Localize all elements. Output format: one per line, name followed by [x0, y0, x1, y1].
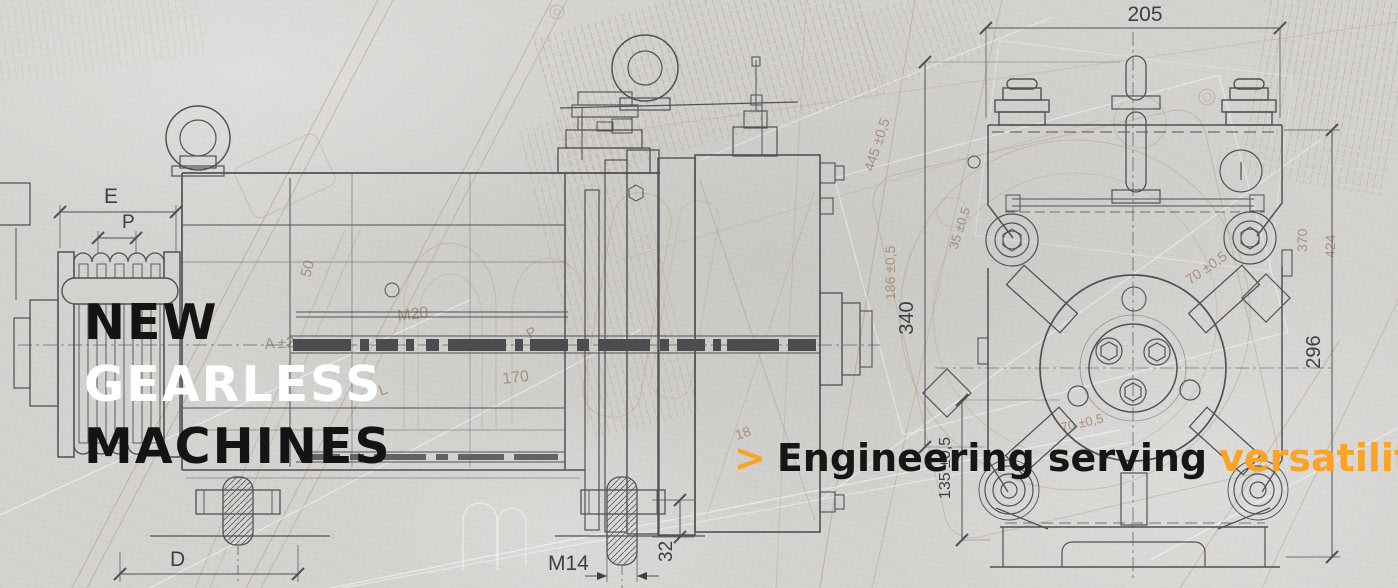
hero-banner: 50 M20 A ±2 P 170 L 18 445 ±0,5 186 ±0,5… — [0, 0, 1398, 588]
tagline-accent-text: versatility — [1219, 436, 1398, 480]
sketch-dim-186: 186 ±0,5 — [882, 245, 898, 300]
headline-line-1: NEW — [84, 292, 392, 354]
sketch-dim-p: P — [523, 323, 539, 342]
sketch-dim-424: 424 — [1322, 234, 1338, 258]
dim-label-e: E — [104, 185, 118, 208]
headline-line-3: MACHINES — [84, 416, 392, 478]
dim-label-m14: M14 — [548, 552, 589, 575]
sketch-dim-70a: 70 ±0,5 — [1183, 247, 1231, 287]
dim-label-32: 32 — [656, 541, 677, 562]
mounting-feet — [150, 477, 705, 588]
cap-nut-left — [995, 79, 1049, 125]
sketch-dim-35: 35 ±0,5 — [946, 205, 974, 251]
dim-label-340: 340 — [896, 301, 918, 334]
sketch-dim-50: 50 — [297, 259, 318, 280]
front-base — [990, 473, 1280, 567]
tagline-arrow-icon: > — [734, 436, 766, 480]
eye-bolt-left — [166, 106, 230, 176]
dim-label-205: 205 — [1127, 3, 1162, 26]
dim-label-p: P — [122, 212, 135, 233]
headline-line-2: GEARLESS — [84, 354, 392, 416]
sketch-dim-m20: M20 — [396, 304, 429, 325]
dim-label-296: 296 — [1303, 335, 1325, 368]
tagline-text: Engineering serving — [777, 436, 1207, 480]
corner-bolts — [979, 212, 1288, 529]
sketch-dim-370: 370 — [1294, 228, 1310, 252]
sketch-dim-170: 170 — [501, 368, 530, 388]
dim-label-d: D — [170, 548, 185, 571]
headline: NEW GEARLESS MACHINES — [84, 292, 392, 478]
tagline: >Engineering servingversatility — [734, 438, 1398, 478]
